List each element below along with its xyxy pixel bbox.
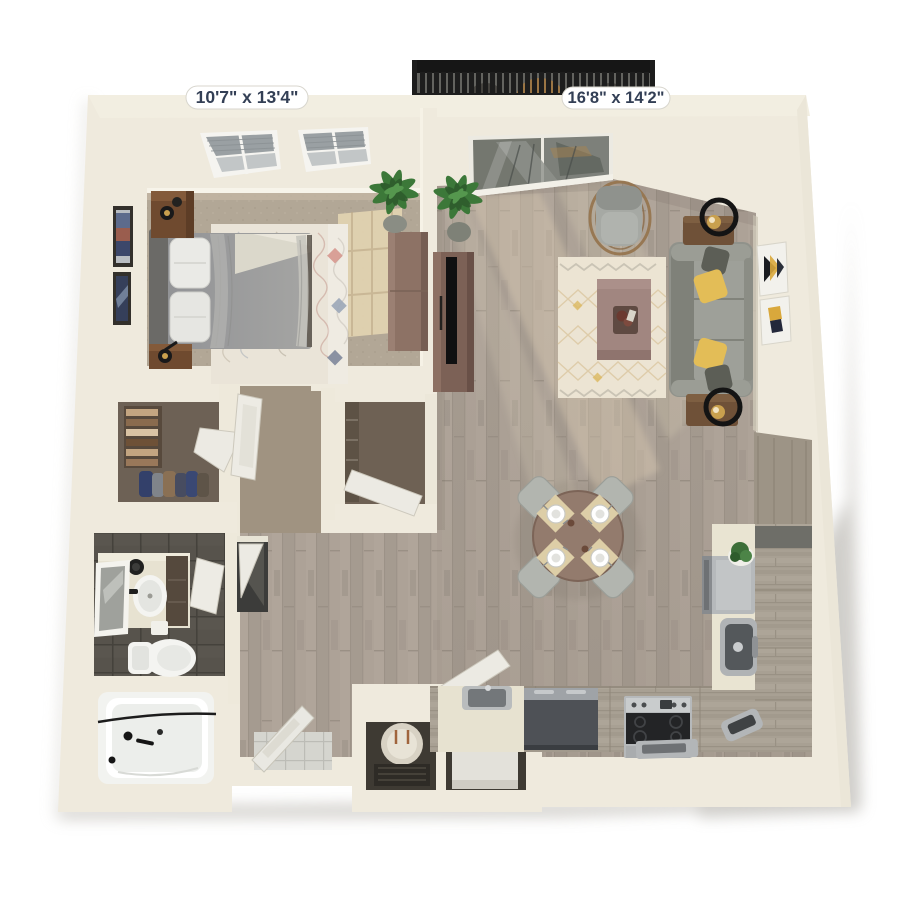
svg-text:16'8" x 14'2": 16'8" x 14'2" [568,89,665,107]
svg-text:10'7" x 13'4": 10'7" x 13'4" [196,87,299,107]
